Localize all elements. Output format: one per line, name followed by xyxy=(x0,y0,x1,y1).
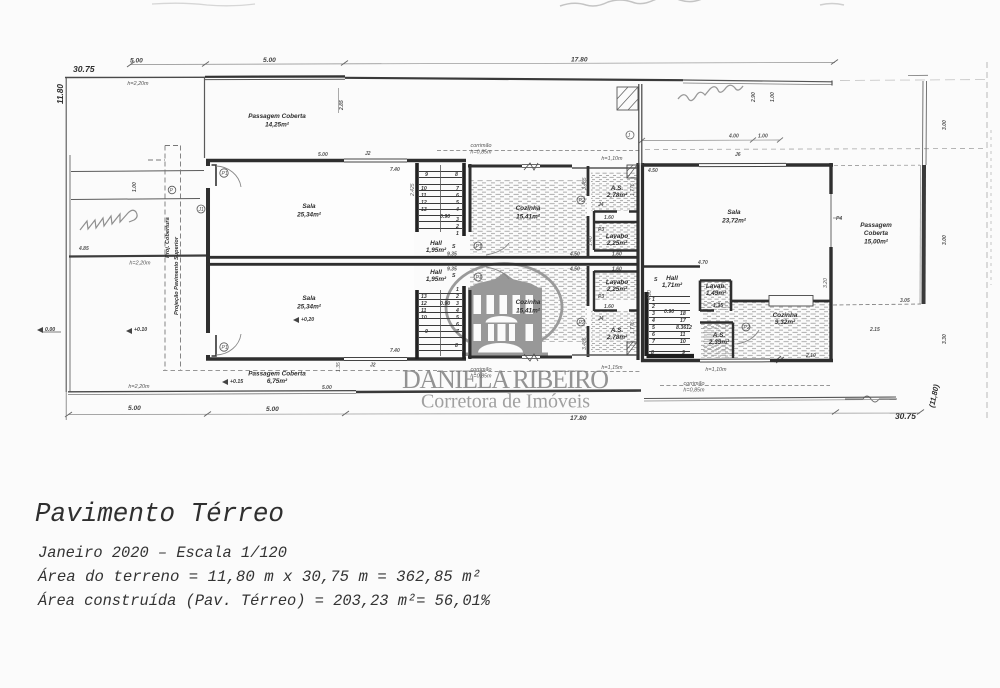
svg-text:6: 6 xyxy=(652,332,655,338)
svg-text:2,78m²: 2,78m² xyxy=(606,334,628,341)
svg-text:J1: J1 xyxy=(198,207,205,213)
svg-text:1,95m²: 1,95m² xyxy=(426,276,447,283)
svg-text:2,25m²: 2,25m² xyxy=(606,286,628,293)
svg-text:Cozinha: Cozinha xyxy=(516,299,541,306)
svg-text:3.00: 3.00 xyxy=(942,235,948,245)
svg-text:P3: P3 xyxy=(598,294,604,300)
svg-text:30.75: 30.75 xyxy=(895,411,916,421)
svg-text:2,39m²: 2,39m² xyxy=(708,339,730,346)
svg-text:23,72m²: 23,72m² xyxy=(721,218,747,225)
svg-text:Cozinha: Cozinha xyxy=(516,205,541,212)
svg-text:4.50: 4.50 xyxy=(569,267,580,273)
svg-text:P4: P4 xyxy=(836,216,842,222)
svg-text:P3: P3 xyxy=(598,227,604,233)
svg-text:1: 1 xyxy=(456,287,459,293)
svg-text:5.00: 5.00 xyxy=(263,57,276,64)
svg-text:Janeiro 2020 – Escala 1/120: Janeiro 2020 – Escala 1/120 xyxy=(38,544,287,562)
svg-text:Área do terreno = 11,80 m x 30: Área do terreno = 11,80 m x 30,75 m = 36… xyxy=(37,567,481,586)
svg-text:2.15: 2.15 xyxy=(869,327,880,333)
svg-text:7.40: 7.40 xyxy=(390,348,400,354)
svg-text:4: 4 xyxy=(651,318,655,324)
svg-text:J: J xyxy=(627,133,631,139)
svg-text:Cozinha: Cozinha xyxy=(773,312,798,319)
svg-text:2.425: 2.425 xyxy=(410,183,416,197)
svg-text:4.70: 4.70 xyxy=(697,260,708,266)
svg-text:2: 2 xyxy=(455,224,459,230)
svg-text:0.90: 0.90 xyxy=(440,301,450,307)
svg-text:2: 2 xyxy=(651,304,655,310)
svg-text:Projeção Pavimento Superior: Projeção Pavimento Superior xyxy=(174,236,180,315)
svg-text:2.10: 2.10 xyxy=(805,353,816,359)
svg-text:1.35: 1.35 xyxy=(336,362,342,372)
svg-text:13: 13 xyxy=(421,207,427,213)
svg-text:h=0,85m: h=0,85m xyxy=(470,150,492,156)
svg-text:3.485: 3.485 xyxy=(582,337,588,350)
svg-text:3: 3 xyxy=(652,311,655,317)
svg-text:Proj. Cobertura: Proj. Cobertura xyxy=(165,217,171,258)
svg-text:Sala: Sala xyxy=(302,203,316,210)
svg-text:3: 3 xyxy=(456,217,459,223)
svg-text:J2: J2 xyxy=(365,151,371,157)
svg-text:6: 6 xyxy=(456,193,459,199)
svg-text:25,34m²: 25,34m² xyxy=(296,212,322,219)
svg-text:A.S.: A.S. xyxy=(712,332,726,339)
svg-text:10: 10 xyxy=(421,315,427,321)
svg-text:2,25m²: 2,25m² xyxy=(606,240,628,247)
svg-text:1.60: 1.60 xyxy=(604,304,614,310)
svg-text:corrimão: corrimão xyxy=(471,367,492,373)
svg-text:9,32m²: 9,32m² xyxy=(775,319,796,326)
svg-text:2: 2 xyxy=(455,294,459,300)
svg-text:Lavabo: Lavabo xyxy=(606,233,628,240)
svg-text:18: 18 xyxy=(680,311,686,317)
svg-text:Hall: Hall xyxy=(430,240,442,247)
svg-text:S: S xyxy=(452,273,456,279)
svg-text:15,00m²: 15,00m² xyxy=(864,239,889,246)
svg-text:Hall: Hall xyxy=(430,269,442,276)
svg-text:h=1,10m: h=1,10m xyxy=(601,156,623,162)
svg-text:A.S.: A.S. xyxy=(610,327,624,334)
svg-text:12: 12 xyxy=(421,301,427,307)
svg-text:9: 9 xyxy=(425,172,428,178)
svg-text:3.30: 3.30 xyxy=(942,334,948,344)
svg-text:1,71m²: 1,71m² xyxy=(662,282,683,289)
svg-text:A.S.: A.S. xyxy=(610,185,624,192)
svg-text:h=2,20m: h=2,20m xyxy=(127,81,149,87)
svg-text:h=1,10m: h=1,10m xyxy=(705,367,727,373)
svg-text:P1: P1 xyxy=(476,275,482,281)
svg-text:1.00: 1.00 xyxy=(770,92,776,102)
svg-text:1,49m²: 1,49m² xyxy=(706,290,727,297)
svg-text:1.40: 1.40 xyxy=(588,236,594,246)
svg-text:2,78m²: 2,78m² xyxy=(606,192,628,199)
svg-text:5.00: 5.00 xyxy=(130,58,143,65)
svg-text:Lavabo: Lavabo xyxy=(606,279,628,286)
svg-text:4.50: 4.50 xyxy=(647,168,658,174)
svg-text:J4: J4 xyxy=(598,316,604,322)
svg-text:5.00: 5.00 xyxy=(266,406,279,413)
svg-text:3.20: 3.20 xyxy=(823,278,829,288)
svg-text:4.85: 4.85 xyxy=(78,246,89,252)
svg-text:11: 11 xyxy=(421,193,426,199)
svg-text:h=1,15m: h=1,15m xyxy=(601,365,623,371)
svg-text:Corretora de Imóveis: Corretora de Imóveis xyxy=(421,391,590,413)
svg-text:9: 9 xyxy=(425,329,428,335)
svg-text:1.00: 1.00 xyxy=(758,134,768,140)
svg-text:4: 4 xyxy=(455,207,459,213)
svg-text:1,776: 1,776 xyxy=(630,183,636,196)
svg-text:Hall: Hall xyxy=(666,275,678,282)
svg-text:h=2,20m: h=2,20m xyxy=(129,261,151,267)
svg-text:corrimão: corrimão xyxy=(471,143,492,149)
svg-text:P2: P2 xyxy=(579,198,585,204)
svg-text:17.80: 17.80 xyxy=(571,57,588,64)
svg-text:0.90: 0.90 xyxy=(664,309,674,315)
svg-text:0.90: 0.90 xyxy=(440,214,450,220)
svg-text:h=0,85m: h=0,85m xyxy=(683,388,705,394)
svg-text:+0.15: +0.15 xyxy=(230,379,243,385)
svg-text:Coberta: Coberta xyxy=(864,230,889,237)
svg-text:J6: J6 xyxy=(735,152,741,158)
svg-text:1.60: 1.60 xyxy=(604,215,614,221)
svg-text:10: 10 xyxy=(680,339,686,345)
svg-text:1: 1 xyxy=(652,297,655,303)
svg-text:9: 9 xyxy=(682,350,685,356)
svg-text:11: 11 xyxy=(421,308,426,314)
svg-text:11: 11 xyxy=(680,332,685,338)
svg-text:Pavimento Térreo: Pavimento Térreo xyxy=(35,500,284,530)
svg-text:8: 8 xyxy=(651,350,654,356)
svg-text:Área construída (Pav. Térreo): Área construída (Pav. Térreo) = 203,23 m… xyxy=(37,591,491,610)
svg-text:corrimão: corrimão xyxy=(684,381,705,387)
svg-text:8.3612: 8.3612 xyxy=(676,325,692,331)
svg-text:5.00: 5.00 xyxy=(318,152,328,158)
svg-text:S: S xyxy=(654,277,658,283)
svg-text:+0.10: +0.10 xyxy=(134,327,147,333)
svg-text:4.50: 4.50 xyxy=(569,252,580,258)
svg-text:P2: P2 xyxy=(744,325,750,331)
svg-text:3.485: 3.485 xyxy=(582,177,588,190)
svg-text:2.90: 2.90 xyxy=(751,92,757,103)
svg-text:15,41m²: 15,41m² xyxy=(516,214,541,221)
svg-text:25,34m²: 25,34m² xyxy=(296,304,322,311)
svg-text:3: 3 xyxy=(456,301,459,307)
svg-text:4.00: 4.00 xyxy=(728,134,739,140)
svg-text:2.85: 2.85 xyxy=(339,100,345,111)
svg-text:13: 13 xyxy=(421,294,427,300)
svg-text:1.60: 1.60 xyxy=(612,252,622,258)
svg-text:14,25m²: 14,25m² xyxy=(265,122,290,129)
svg-text:4: 4 xyxy=(455,308,459,314)
svg-text:P1: P1 xyxy=(222,171,228,177)
svg-text:J2: J2 xyxy=(370,363,376,369)
svg-text:Sala: Sala xyxy=(727,209,741,216)
svg-text:5.00: 5.00 xyxy=(322,385,332,391)
svg-text:Passagem Coberta: Passagem Coberta xyxy=(248,371,306,378)
svg-text:5: 5 xyxy=(456,315,459,321)
svg-text:6,75m²: 6,75m² xyxy=(267,378,288,385)
svg-text:6: 6 xyxy=(456,322,459,328)
svg-text:1: 1 xyxy=(456,231,459,237)
svg-text:12: 12 xyxy=(421,200,427,206)
svg-text:J4: J4 xyxy=(598,202,604,208)
svg-text:8: 8 xyxy=(455,343,458,349)
svg-text:7.40: 7.40 xyxy=(390,167,400,173)
svg-text:8: 8 xyxy=(455,172,458,178)
svg-text:P1: P1 xyxy=(476,244,482,250)
svg-text:9.35: 9.35 xyxy=(447,267,457,273)
svg-text:1.35: 1.35 xyxy=(713,303,723,309)
svg-text:1,776: 1,776 xyxy=(630,321,636,334)
svg-text:10: 10 xyxy=(421,186,427,192)
svg-text:30.75: 30.75 xyxy=(73,64,95,74)
svg-text:P2: P2 xyxy=(579,320,585,326)
svg-text:1.00: 1.00 xyxy=(132,182,138,192)
svg-text:h=2,20m: h=2,20m xyxy=(128,384,150,390)
svg-text:17.80: 17.80 xyxy=(570,415,587,422)
svg-text:15,41m²: 15,41m² xyxy=(516,308,541,315)
svg-text:Lavab.: Lavab. xyxy=(706,283,726,290)
svg-text:Sala: Sala xyxy=(302,295,316,302)
svg-text:S: S xyxy=(452,244,456,250)
svg-text:+0,20: +0,20 xyxy=(301,317,314,323)
svg-text:11.80: 11.80 xyxy=(56,84,65,104)
svg-text:3.00: 3.00 xyxy=(942,120,948,130)
svg-text:9.35: 9.35 xyxy=(447,252,457,258)
svg-text:Passagem: Passagem xyxy=(860,222,892,229)
svg-text:5: 5 xyxy=(652,325,655,331)
svg-text:P1: P1 xyxy=(222,345,228,351)
svg-text:5: 5 xyxy=(456,200,459,206)
svg-text:1,95m²: 1,95m² xyxy=(426,247,447,254)
svg-text:3.05: 3.05 xyxy=(900,298,910,304)
svg-text:h=0,85m: h=0,85m xyxy=(470,374,492,380)
svg-text:Passagem Coberta: Passagem Coberta xyxy=(248,113,306,120)
svg-text:5.00: 5.00 xyxy=(128,405,141,412)
